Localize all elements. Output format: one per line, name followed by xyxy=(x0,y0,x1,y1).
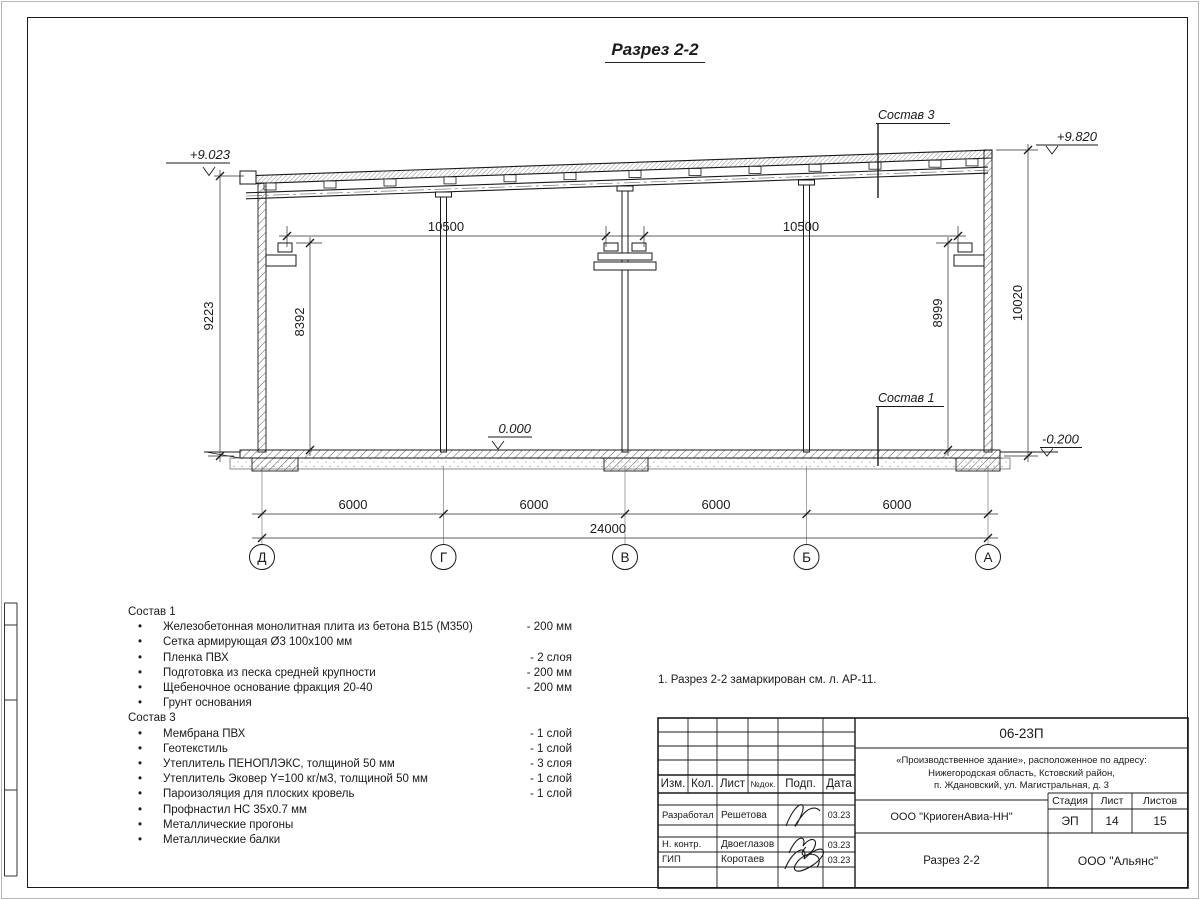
bullet-icon xyxy=(128,651,163,666)
elev-roof-right: +9.820 xyxy=(1057,129,1098,144)
dim-height-crane-right: 8999 xyxy=(930,299,945,328)
bullet-icon xyxy=(128,635,163,650)
tb-stage-label: Стадия xyxy=(1048,793,1092,809)
tb-col-data: Дата xyxy=(823,775,855,793)
signatures xyxy=(785,805,824,871)
list-item: Сетка армирующая Ø3 100х100 мм xyxy=(128,635,572,650)
dim-height-left: 9223 xyxy=(201,302,216,331)
dim-bay-1: 6000 xyxy=(339,497,368,512)
axis-bubbles: Д Г В Б А xyxy=(250,545,1001,570)
foundation-pad-right xyxy=(956,458,1000,471)
tb-col-list: Лист xyxy=(717,775,748,793)
tb-role-1: Разработал xyxy=(659,805,719,825)
side-stamp xyxy=(5,603,18,876)
wall-left xyxy=(258,183,266,452)
bullet-icon xyxy=(128,696,163,711)
bullet-icon xyxy=(128,818,163,833)
elev-ground: -0.200 xyxy=(1042,432,1080,447)
bullet-icon xyxy=(128,742,163,757)
tb-drawing-title: Разрез 2-2 xyxy=(855,833,1048,888)
tb-contractor: ООО "Альянс" xyxy=(1048,833,1188,888)
tb-name-2: Двоеглазов xyxy=(718,837,780,852)
tb-sheets-label: Листов xyxy=(1132,793,1188,809)
column-v xyxy=(617,186,633,452)
tb-col-izm: Изм. xyxy=(658,775,688,793)
list-item: Пароизоляция для плоских кровель- 1 слой xyxy=(128,787,572,802)
roof-left-parapet xyxy=(240,171,256,184)
bullet-icon xyxy=(128,803,163,818)
sostav1-title: Состав 1 xyxy=(128,605,572,620)
dim-bay-4: 6000 xyxy=(883,497,912,512)
tb-col-ndok: №док. xyxy=(748,775,778,793)
bullet-icon xyxy=(128,772,163,787)
axis-label-d: Д xyxy=(257,550,266,565)
bullet-icon xyxy=(128,833,163,848)
callout-sostav1: Состав 1 xyxy=(878,391,934,405)
list-item: Щебеночное основание фракция 20-40- 200 … xyxy=(128,681,572,696)
bracket-right-top xyxy=(958,243,972,252)
list-item: Мембрана ПВХ- 1 слой xyxy=(128,727,572,742)
tb-sheet-label: Лист xyxy=(1092,793,1132,809)
tb-role-2: Н. контр. xyxy=(659,837,719,852)
bullet-icon xyxy=(128,666,163,681)
bracket-left-base xyxy=(266,255,296,266)
dim-height-right: 10020 xyxy=(1010,285,1025,321)
axis-label-g: Г xyxy=(440,550,448,565)
axis-label-b: Б xyxy=(802,550,811,565)
dim-crane-span-1: 10500 xyxy=(428,219,464,234)
list-item: Металлические балки xyxy=(128,833,572,848)
floor-slab xyxy=(240,450,1000,458)
list-item: Профнастил НС 35х0.7 мм xyxy=(128,803,572,818)
bullet-icon xyxy=(128,757,163,772)
bracket-left-top xyxy=(278,243,292,252)
bullet-icon xyxy=(128,787,163,802)
list-item: Грунт основания xyxy=(128,696,572,711)
dim-bay-3: 6000 xyxy=(702,497,731,512)
tb-col-podp: Подп. xyxy=(778,775,823,793)
bracket-mid-plate xyxy=(598,253,652,260)
drawing-sheet: { "sheet": { "title": "Разрез 2-2", "not… xyxy=(0,0,1200,900)
list-item: Утеплитель Эковер Y=100 кг/м3, толщиной … xyxy=(128,772,572,787)
roof xyxy=(240,150,992,199)
list-item: Геотекстиль- 1 слой xyxy=(128,742,572,757)
bullet-icon xyxy=(128,620,163,635)
list-item: Подготовка из песка средней крупности- 2… xyxy=(128,666,572,681)
list-item: Металлические прогоны xyxy=(128,818,572,833)
foundation-pad-left xyxy=(252,458,298,471)
tb-sheet-value: 14 xyxy=(1092,809,1132,833)
tb-col-kol: Кол. xyxy=(688,775,717,793)
sostav3-title: Состав 3 xyxy=(128,711,572,726)
dim-bay-2: 6000 xyxy=(520,497,549,512)
tb-date-1: 03.23 xyxy=(823,805,855,825)
tb-role-3: ГИП xyxy=(659,852,719,867)
bracket-right-base xyxy=(954,255,984,266)
tb-company: ООО "КриогенАвиа-НН" xyxy=(855,800,1048,833)
bracket-mid-base xyxy=(594,262,656,270)
sheet-note: 1. Разрез 2-2 замаркирован см. л. АР-11. xyxy=(658,674,876,686)
axis-label-a: А xyxy=(983,550,992,565)
bullet-icon xyxy=(128,727,163,742)
tb-doc-number: 06-23П xyxy=(855,718,1188,748)
list-item: Пленка ПВХ- 2 слоя xyxy=(128,651,572,666)
wall-right xyxy=(984,150,992,452)
tb-name-3: Коротаев xyxy=(718,852,780,867)
floor xyxy=(204,450,1058,471)
legend: Состав 1 Железобетонная монолитная плита… xyxy=(128,605,572,848)
bullet-icon xyxy=(128,681,163,696)
list-item: Утеплитель ПЕНОПЛЭКС, толщиной 50 мм- 3 … xyxy=(128,757,572,772)
tb-stage-value: ЭП xyxy=(1048,809,1092,833)
callout-sostav3: Состав 3 xyxy=(878,108,934,122)
tb-name-1: Решетова xyxy=(718,805,780,825)
tb-sheets-value: 15 xyxy=(1132,809,1188,833)
foundation-pad-mid xyxy=(604,458,648,471)
elev-roof-left: +9.023 xyxy=(190,147,231,162)
tb-date-3: 03.23 xyxy=(823,852,855,867)
axis-label-v: В xyxy=(620,550,629,565)
list-item: Железобетонная монолитная плита из бетон… xyxy=(128,620,572,635)
signature-reshetova xyxy=(786,805,820,827)
elevation-marks xyxy=(166,145,1098,456)
dim-crane-span-2: 10500 xyxy=(783,219,819,234)
tb-date-2: 03.23 xyxy=(823,837,855,852)
dim-total: 24000 xyxy=(590,521,626,536)
dim-height-crane-left: 8392 xyxy=(292,308,307,337)
elev-floor: 0.000 xyxy=(498,421,531,436)
